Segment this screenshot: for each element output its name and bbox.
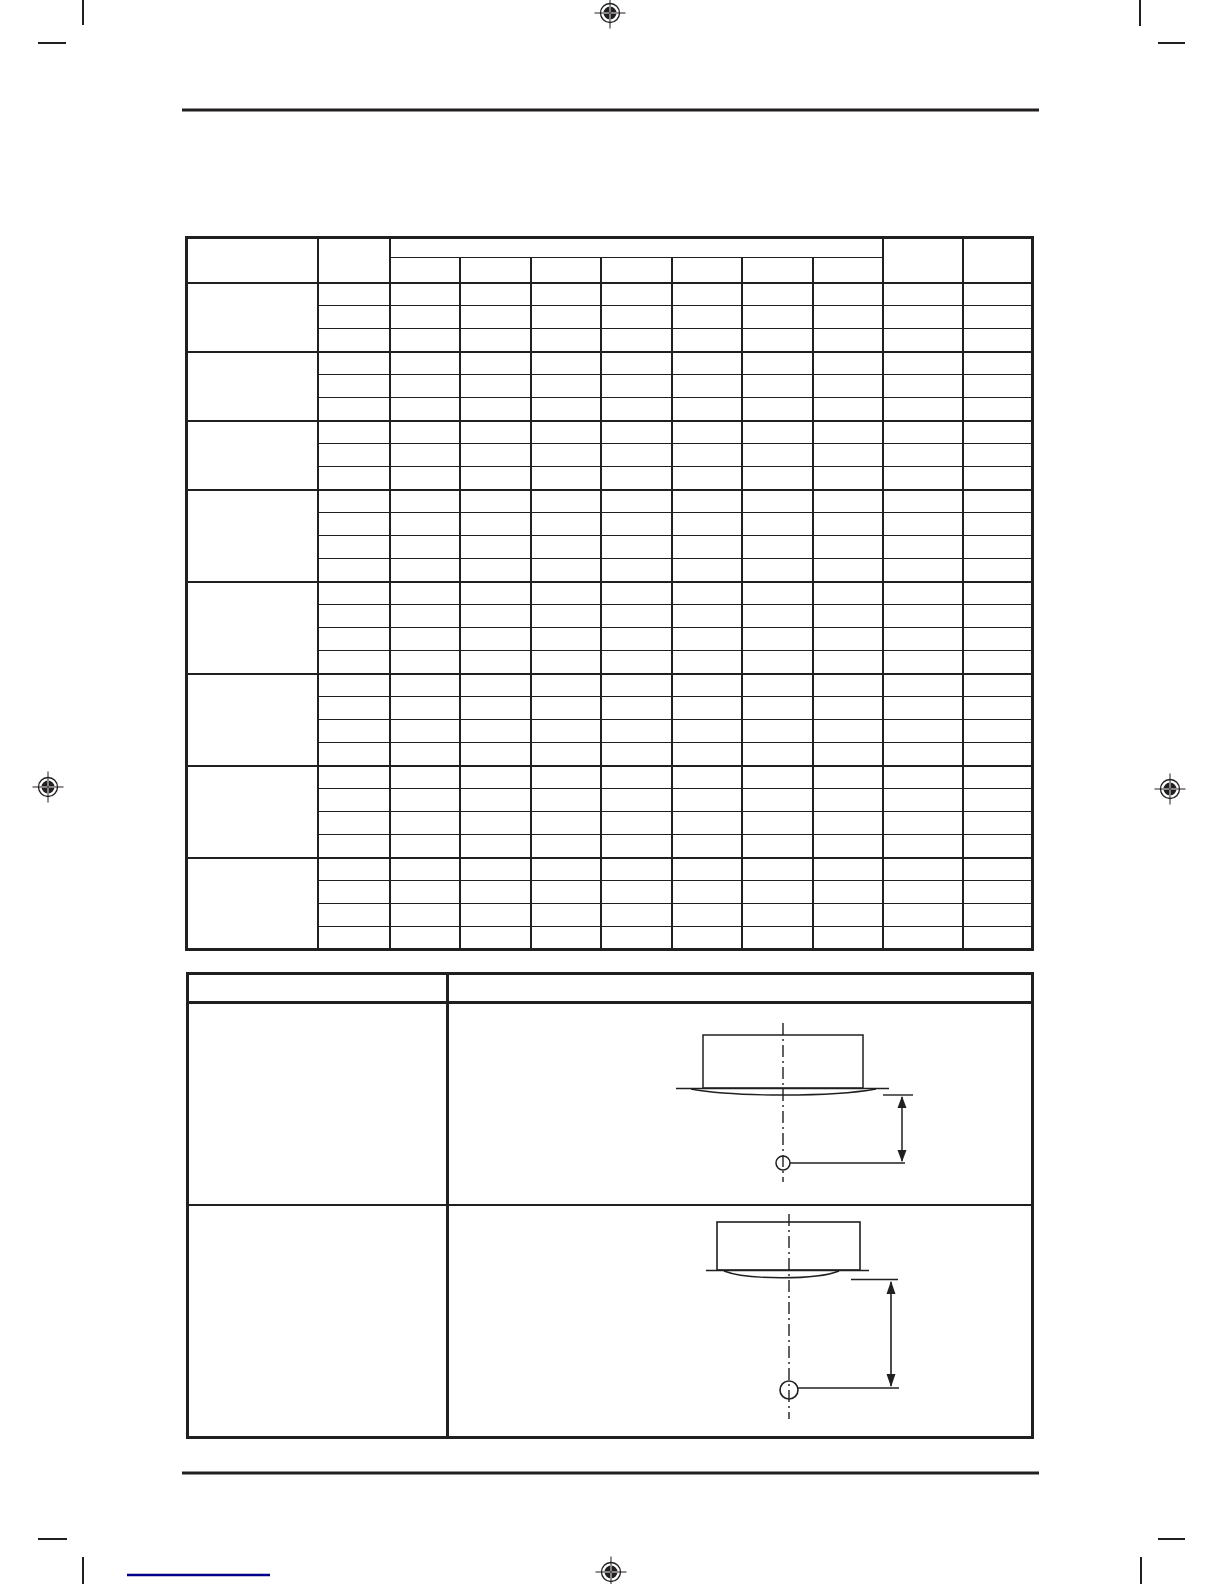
empty-data-cell <box>601 582 672 605</box>
empty-data-cell <box>318 697 390 720</box>
empty-data-cell <box>883 375 963 398</box>
empty-data-cell <box>672 352 742 375</box>
empty-data-cell <box>460 536 531 559</box>
empty-data-cell <box>963 605 1033 628</box>
empty-data-cell <box>883 812 963 835</box>
empty-data-cell <box>742 375 813 398</box>
row-group-label-cell <box>187 858 318 950</box>
empty-data-cell <box>672 789 742 812</box>
empty-data-cell <box>318 490 390 513</box>
empty-data-cell <box>390 375 460 398</box>
empty-data-cell <box>460 444 531 467</box>
empty-data-cell <box>963 306 1033 329</box>
empty-data-cell <box>601 674 672 697</box>
panel-curve <box>724 1271 839 1278</box>
empty-data-cell <box>963 513 1033 536</box>
empty-data-cell <box>318 927 390 950</box>
empty-data-cell <box>813 559 883 582</box>
empty-data-cell <box>672 306 742 329</box>
empty-data-cell <box>460 398 531 421</box>
empty-data-cell <box>742 628 813 651</box>
empty-data-cell <box>963 352 1033 375</box>
diagram-ceiling-unit-small <box>449 1004 1028 1202</box>
empty-data-cell <box>963 904 1033 927</box>
installation-diagram-table <box>186 972 1034 1439</box>
empty-data-cell <box>601 559 672 582</box>
empty-data-cell <box>531 513 601 536</box>
empty-data-cell <box>460 904 531 927</box>
empty-data-cell <box>390 398 460 421</box>
empty-data-cell <box>318 651 390 674</box>
empty-data-cell <box>813 490 883 513</box>
empty-data-cell <box>460 697 531 720</box>
specification-grid-body <box>187 283 1033 950</box>
empty-data-cell <box>318 421 390 444</box>
empty-data-cell <box>963 375 1033 398</box>
empty-data-cell <box>813 444 883 467</box>
empty-data-cell <box>742 651 813 674</box>
empty-data-cell <box>460 559 531 582</box>
empty-data-cell <box>460 490 531 513</box>
row-group-label-cell <box>187 283 318 352</box>
empty-data-cell <box>672 536 742 559</box>
empty-data-cell <box>460 467 531 490</box>
empty-data-cell <box>963 812 1033 835</box>
empty-data-cell <box>813 904 883 927</box>
empty-data-cell <box>601 444 672 467</box>
empty-data-cell <box>963 674 1033 697</box>
empty-data-cell <box>813 536 883 559</box>
empty-data-cell <box>963 444 1033 467</box>
empty-data-cell <box>601 651 672 674</box>
empty-data-cell <box>318 835 390 858</box>
empty-data-cell <box>318 904 390 927</box>
empty-data-cell <box>390 536 460 559</box>
empty-data-cell <box>601 720 672 743</box>
empty-data-cell <box>672 283 742 306</box>
sub-column-header-cell <box>742 258 813 283</box>
empty-data-cell <box>390 352 460 375</box>
empty-data-cell <box>672 697 742 720</box>
empty-data-cell <box>883 421 963 444</box>
empty-data-cell <box>318 766 390 789</box>
empty-data-cell <box>742 398 813 421</box>
empty-data-cell <box>963 743 1033 766</box>
empty-data-cell <box>813 743 883 766</box>
empty-data-cell <box>672 835 742 858</box>
empty-data-cell <box>742 697 813 720</box>
empty-data-cell <box>883 490 963 513</box>
empty-data-cell <box>460 835 531 858</box>
empty-data-cell <box>742 490 813 513</box>
empty-data-cell <box>963 881 1033 904</box>
empty-data-cell <box>531 283 601 306</box>
empty-data-cell <box>318 536 390 559</box>
empty-data-cell <box>390 559 460 582</box>
empty-data-cell <box>742 835 813 858</box>
empty-data-cell <box>813 605 883 628</box>
empty-data-cell <box>460 582 531 605</box>
empty-data-cell <box>531 536 601 559</box>
empty-data-cell <box>813 375 883 398</box>
empty-data-cell <box>390 789 460 812</box>
empty-data-cell <box>318 352 390 375</box>
empty-data-cell <box>531 329 601 352</box>
row-group-label-cell <box>187 421 318 490</box>
empty-data-cell <box>672 812 742 835</box>
empty-data-cell <box>813 858 883 881</box>
empty-data-cell <box>672 490 742 513</box>
table2-row2-diagram-cell <box>448 1205 1033 1438</box>
empty-data-cell <box>672 766 742 789</box>
empty-data-cell <box>742 927 813 950</box>
empty-data-cell <box>601 421 672 444</box>
empty-data-cell <box>460 628 531 651</box>
empty-data-cell <box>531 904 601 927</box>
empty-data-cell <box>742 605 813 628</box>
empty-data-cell <box>601 283 672 306</box>
empty-data-cell <box>883 444 963 467</box>
empty-data-cell <box>883 329 963 352</box>
empty-data-cell <box>531 835 601 858</box>
empty-data-cell <box>813 674 883 697</box>
empty-data-cell <box>963 628 1033 651</box>
registration-mark-icon <box>1155 774 1186 805</box>
empty-data-cell <box>460 513 531 536</box>
empty-data-cell <box>531 582 601 605</box>
empty-data-cell <box>813 881 883 904</box>
empty-data-cell <box>883 306 963 329</box>
merged-group-header-cell <box>390 238 883 258</box>
empty-data-cell <box>601 789 672 812</box>
empty-data-cell <box>601 329 672 352</box>
empty-data-cell <box>390 697 460 720</box>
sub-column-header-cell <box>390 258 460 283</box>
empty-data-cell <box>813 513 883 536</box>
empty-data-cell <box>531 467 601 490</box>
empty-data-cell <box>318 329 390 352</box>
empty-data-cell <box>813 651 883 674</box>
empty-data-cell <box>742 467 813 490</box>
empty-data-cell <box>883 881 963 904</box>
empty-data-cell <box>672 444 742 467</box>
empty-data-cell <box>531 444 601 467</box>
empty-data-cell <box>460 352 531 375</box>
empty-data-cell <box>390 904 460 927</box>
row-group-label-cell <box>187 766 318 858</box>
empty-data-cell <box>883 835 963 858</box>
empty-data-cell <box>318 582 390 605</box>
empty-data-cell <box>672 329 742 352</box>
empty-data-cell <box>742 858 813 881</box>
empty-data-cell <box>318 720 390 743</box>
empty-data-cell <box>460 927 531 950</box>
empty-data-cell <box>883 789 963 812</box>
empty-data-cell <box>601 743 672 766</box>
empty-data-cell <box>883 283 963 306</box>
empty-data-cell <box>742 444 813 467</box>
empty-data-cell <box>813 720 883 743</box>
empty-data-cell <box>531 628 601 651</box>
empty-data-cell <box>742 674 813 697</box>
empty-data-cell <box>318 881 390 904</box>
empty-data-cell <box>883 398 963 421</box>
empty-data-cell <box>460 743 531 766</box>
empty-data-cell <box>390 651 460 674</box>
empty-data-cell <box>531 881 601 904</box>
empty-data-cell <box>531 605 601 628</box>
sub-column-header-cell <box>672 258 742 283</box>
empty-data-cell <box>813 421 883 444</box>
empty-data-cell <box>672 858 742 881</box>
empty-data-cell <box>318 444 390 467</box>
empty-data-cell <box>742 283 813 306</box>
eleventh-column-header-cell <box>963 238 1033 283</box>
empty-data-cell <box>963 398 1033 421</box>
empty-data-cell <box>883 858 963 881</box>
specification-grid-header <box>187 238 1033 283</box>
empty-data-cell <box>742 789 813 812</box>
empty-data-cell <box>390 927 460 950</box>
empty-data-cell <box>318 398 390 421</box>
empty-data-cell <box>531 375 601 398</box>
empty-data-cell <box>531 306 601 329</box>
empty-data-cell <box>883 582 963 605</box>
empty-data-cell <box>460 605 531 628</box>
empty-data-cell <box>531 490 601 513</box>
empty-data-cell <box>531 789 601 812</box>
empty-data-cell <box>963 582 1033 605</box>
empty-data-cell <box>883 605 963 628</box>
empty-data-cell <box>883 352 963 375</box>
empty-data-cell <box>390 306 460 329</box>
document-page <box>0 0 1224 1584</box>
empty-data-cell <box>318 306 390 329</box>
empty-data-cell <box>672 720 742 743</box>
empty-data-cell <box>813 283 883 306</box>
empty-data-cell <box>963 559 1033 582</box>
empty-data-cell <box>460 329 531 352</box>
empty-data-cell <box>742 352 813 375</box>
empty-data-cell <box>531 927 601 950</box>
empty-data-cell <box>390 743 460 766</box>
empty-data-cell <box>318 858 390 881</box>
table2-header-left-cell <box>188 974 448 1003</box>
empty-data-cell <box>601 536 672 559</box>
empty-data-cell <box>672 605 742 628</box>
sub-column-header-cell <box>813 258 883 283</box>
empty-data-cell <box>531 398 601 421</box>
empty-data-cell <box>742 513 813 536</box>
registration-mark-icon <box>33 772 64 803</box>
empty-data-cell <box>672 421 742 444</box>
empty-data-cell <box>883 766 963 789</box>
empty-data-cell <box>390 490 460 513</box>
row-group-label-cell <box>187 352 318 421</box>
empty-data-cell <box>742 743 813 766</box>
empty-data-cell <box>742 306 813 329</box>
sub-category-header-cell <box>318 238 390 283</box>
empty-data-cell <box>883 559 963 582</box>
empty-data-cell <box>883 467 963 490</box>
empty-data-cell <box>672 467 742 490</box>
empty-data-cell <box>672 513 742 536</box>
empty-data-cell <box>963 651 1033 674</box>
empty-data-cell <box>601 398 672 421</box>
empty-data-cell <box>813 766 883 789</box>
sub-column-header-cell <box>460 258 531 283</box>
empty-data-cell <box>601 812 672 835</box>
empty-data-cell <box>390 628 460 651</box>
empty-data-cell <box>672 398 742 421</box>
empty-data-cell <box>318 743 390 766</box>
empty-data-cell <box>601 927 672 950</box>
empty-data-cell <box>883 651 963 674</box>
row-group-label-cell <box>187 582 318 674</box>
empty-data-cell <box>742 904 813 927</box>
row-group-label-cell <box>187 674 318 766</box>
empty-data-cell <box>672 743 742 766</box>
empty-data-cell <box>883 904 963 927</box>
sub-column-header-cell <box>531 258 601 283</box>
empty-data-cell <box>390 421 460 444</box>
empty-data-cell <box>318 812 390 835</box>
dimension-arrow <box>898 1096 907 1162</box>
empty-data-cell <box>672 582 742 605</box>
empty-data-cell <box>742 582 813 605</box>
empty-data-cell <box>390 812 460 835</box>
empty-data-cell <box>390 766 460 789</box>
empty-data-cell <box>963 766 1033 789</box>
empty-data-cell <box>460 421 531 444</box>
empty-data-cell <box>318 628 390 651</box>
empty-data-cell <box>318 559 390 582</box>
empty-data-cell <box>672 904 742 927</box>
registration-mark-icon <box>595 0 626 29</box>
empty-data-cell <box>883 674 963 697</box>
specification-grid-table <box>185 236 1034 951</box>
empty-data-cell <box>390 881 460 904</box>
empty-data-cell <box>813 352 883 375</box>
empty-data-cell <box>390 720 460 743</box>
empty-data-cell <box>531 858 601 881</box>
empty-data-cell <box>672 881 742 904</box>
empty-data-cell <box>531 720 601 743</box>
empty-data-cell <box>531 352 601 375</box>
empty-data-cell <box>963 536 1033 559</box>
empty-data-cell <box>531 421 601 444</box>
empty-data-cell <box>963 789 1033 812</box>
empty-data-cell <box>963 697 1033 720</box>
empty-data-cell <box>963 421 1033 444</box>
empty-data-cell <box>742 536 813 559</box>
empty-data-cell <box>672 559 742 582</box>
empty-data-cell <box>813 927 883 950</box>
empty-data-cell <box>390 329 460 352</box>
empty-data-cell <box>390 674 460 697</box>
empty-data-cell <box>390 605 460 628</box>
empty-data-cell <box>318 467 390 490</box>
empty-data-cell <box>460 789 531 812</box>
empty-data-cell <box>601 628 672 651</box>
empty-data-cell <box>390 835 460 858</box>
empty-data-cell <box>601 513 672 536</box>
empty-data-cell <box>460 375 531 398</box>
empty-data-cell <box>883 720 963 743</box>
empty-data-cell <box>742 812 813 835</box>
empty-data-cell <box>601 490 672 513</box>
empty-data-cell <box>531 674 601 697</box>
empty-data-cell <box>813 628 883 651</box>
empty-data-cell <box>813 329 883 352</box>
table2-header-right-cell <box>448 974 1033 1003</box>
empty-data-cell <box>813 835 883 858</box>
empty-data-cell <box>963 329 1033 352</box>
empty-data-cell <box>883 536 963 559</box>
empty-data-cell <box>460 720 531 743</box>
empty-data-cell <box>601 467 672 490</box>
empty-data-cell <box>390 513 460 536</box>
empty-data-cell <box>531 651 601 674</box>
empty-data-cell <box>531 697 601 720</box>
empty-data-cell <box>601 352 672 375</box>
tenth-column-header-cell <box>883 238 963 283</box>
empty-data-cell <box>318 283 390 306</box>
empty-data-cell <box>460 283 531 306</box>
row-group-label-cell <box>187 490 318 582</box>
empty-data-cell <box>390 858 460 881</box>
empty-data-cell <box>601 904 672 927</box>
empty-data-cell <box>318 605 390 628</box>
empty-data-cell <box>742 329 813 352</box>
empty-data-cell <box>531 559 601 582</box>
empty-data-cell <box>601 375 672 398</box>
empty-data-cell <box>672 927 742 950</box>
empty-data-cell <box>390 444 460 467</box>
empty-data-cell <box>742 559 813 582</box>
empty-data-cell <box>963 490 1033 513</box>
empty-data-cell <box>531 812 601 835</box>
empty-data-cell <box>460 858 531 881</box>
empty-data-cell <box>883 927 963 950</box>
empty-data-cell <box>460 306 531 329</box>
empty-data-cell <box>813 812 883 835</box>
diagram-ceiling-unit-large <box>449 1206 1028 1433</box>
empty-data-cell <box>531 766 601 789</box>
empty-data-cell <box>601 835 672 858</box>
dimension-arrow <box>887 1281 896 1387</box>
empty-data-cell <box>531 743 601 766</box>
empty-data-cell <box>390 582 460 605</box>
empty-data-cell <box>672 375 742 398</box>
empty-data-cell <box>813 306 883 329</box>
empty-data-cell <box>742 720 813 743</box>
empty-data-cell <box>318 789 390 812</box>
empty-data-cell <box>742 766 813 789</box>
empty-data-cell <box>813 398 883 421</box>
empty-data-cell <box>963 835 1033 858</box>
empty-data-cell <box>883 628 963 651</box>
empty-data-cell <box>813 789 883 812</box>
empty-data-cell <box>601 858 672 881</box>
empty-data-cell <box>963 927 1033 950</box>
empty-data-cell <box>963 467 1033 490</box>
empty-data-cell <box>963 858 1033 881</box>
empty-data-cell <box>318 674 390 697</box>
empty-data-cell <box>390 283 460 306</box>
empty-data-cell <box>813 467 883 490</box>
sub-column-header-cell <box>601 258 672 283</box>
